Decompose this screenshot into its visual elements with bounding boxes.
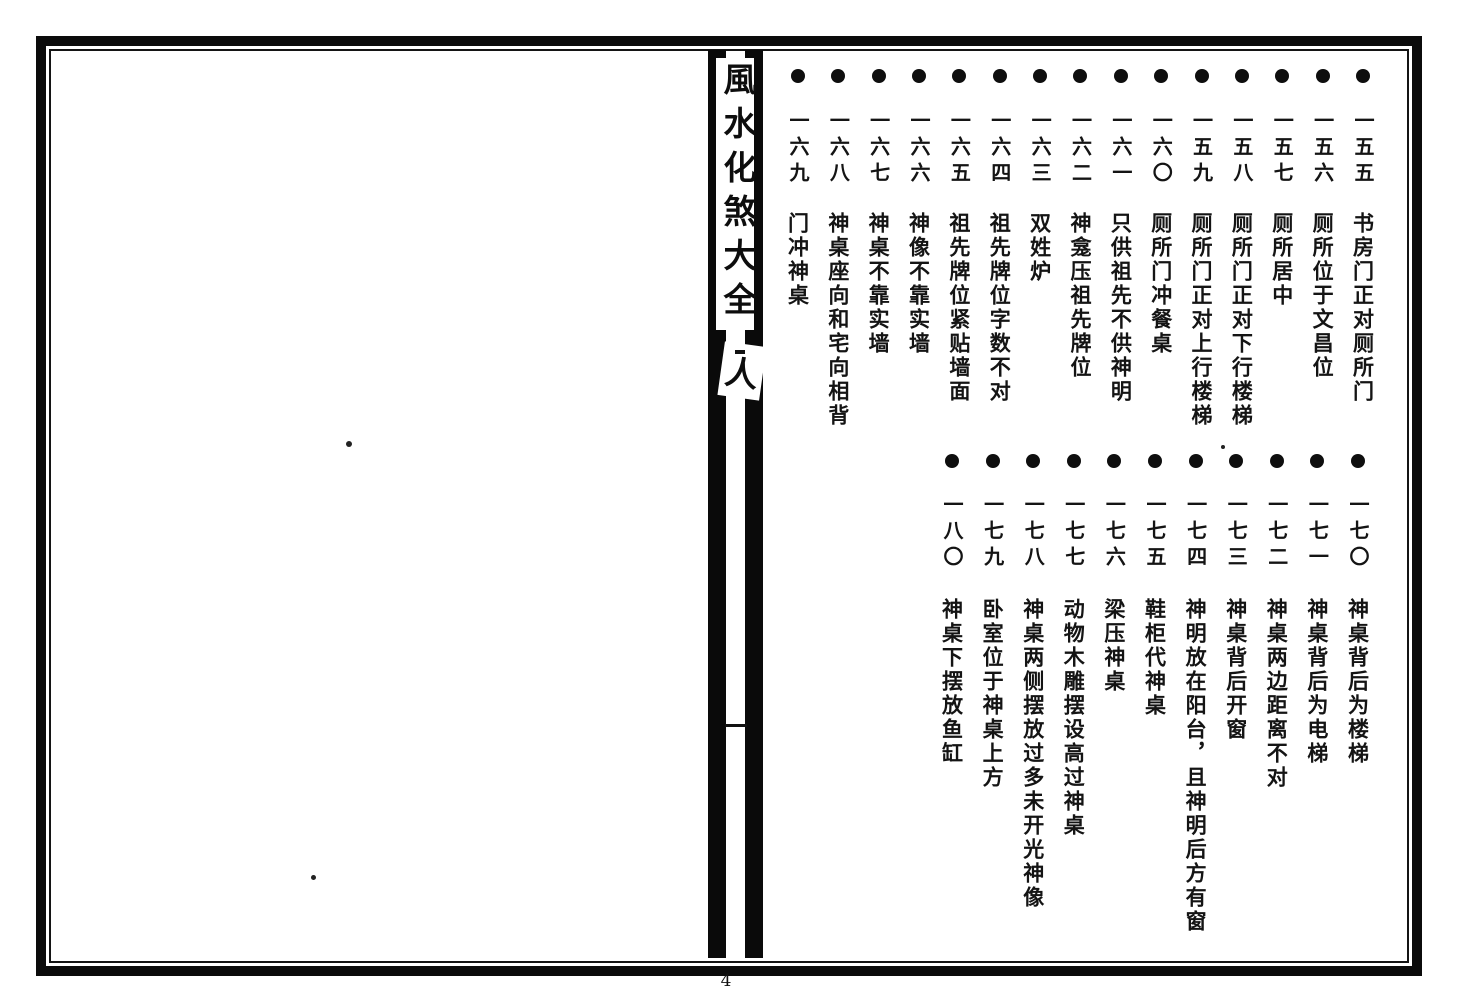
entry-title: 神桌两边距离不对 xyxy=(1266,598,1287,790)
scanned-book-spread: 風水化煞大全 人 一五五书房门正对厕所门一五六厕所位于文昌位一五七厕所居中一五八… xyxy=(0,0,1459,1003)
bullet-dot-icon xyxy=(1067,454,1081,468)
spine-divider-line xyxy=(735,350,745,354)
scan-speck xyxy=(346,441,352,447)
toc-entry: 一七七动物木雕摆设高过神桌 xyxy=(1054,0,1094,1003)
entry-page-number: 一七九 xyxy=(983,494,1003,572)
entry-page-number: 一七六 xyxy=(1104,494,1124,572)
entry-page-number: 一六七 xyxy=(869,110,889,188)
entry-page-number: 一七二 xyxy=(1267,494,1287,572)
entry-title: 门冲神桌 xyxy=(787,212,808,308)
bullet-dot-icon xyxy=(831,69,845,83)
toc-entry: 一六八神桌座向和宅向相背 xyxy=(818,0,858,1003)
entry-title: 神像不靠实墙 xyxy=(909,212,930,356)
toc-entry: 一七四神明放在阳台，且神明后方有窗 xyxy=(1176,0,1216,1003)
entry-page-number: 一七三 xyxy=(1226,494,1246,572)
entry-page-number: 一七八 xyxy=(1023,494,1043,572)
bullet-dot-icon xyxy=(1148,454,1162,468)
entry-page-number: 一六八 xyxy=(828,110,848,188)
bullet-dot-icon xyxy=(1229,454,1243,468)
entry-page-number: 一六九 xyxy=(788,110,808,188)
entry-title: 神桌背后为楼梯 xyxy=(1348,598,1369,766)
toc-entry: 一七一神桌背后为电梯 xyxy=(1297,0,1337,1003)
toc-entry: 一六七神桌不靠实墙 xyxy=(859,0,899,1003)
entry-page-number: 一八〇 xyxy=(942,494,962,572)
bullet-dot-icon xyxy=(912,69,926,83)
entry-page-number: 一六六 xyxy=(909,110,929,188)
bullet-dot-icon xyxy=(1270,454,1284,468)
entry-title: 神桌不靠实墙 xyxy=(868,212,889,356)
entry-page-number: 一七四 xyxy=(1186,494,1206,572)
bullet-dot-icon xyxy=(986,454,1000,468)
entry-page-number: 一七一 xyxy=(1307,494,1327,572)
spine-book-title: 風水化煞大全 xyxy=(716,58,754,330)
toc-entry: 一六九门冲神桌 xyxy=(778,0,818,1003)
entry-title: 神桌背后为电梯 xyxy=(1307,598,1328,766)
entry-page-number: 一七五 xyxy=(1145,494,1165,572)
toc-entry: 一七二神桌两边距离不对 xyxy=(1257,0,1297,1003)
entry-title: 动物木雕摆设高过神桌 xyxy=(1063,598,1084,838)
toc-entry: 一七六梁压神桌 xyxy=(1094,0,1134,1003)
toc-entry: 一七三神桌背后开窗 xyxy=(1216,0,1256,1003)
entry-title: 神桌下摆放鱼缸 xyxy=(942,598,963,766)
entry-title: 梁压神桌 xyxy=(1104,598,1125,694)
bullet-dot-icon xyxy=(1107,454,1121,468)
toc-entry: 一八〇神桌下摆放鱼缸 xyxy=(932,0,972,1003)
entry-title: 神桌座向和宅向相背 xyxy=(828,212,849,428)
entry-page-number: 一七〇 xyxy=(1348,494,1368,572)
entry-title: 卧室位于神桌上方 xyxy=(982,598,1003,790)
entry-title: 鞋柜代神桌 xyxy=(1145,598,1166,718)
toc-entry: 一七〇神桌背后为楼梯 xyxy=(1338,0,1378,1003)
entry-title: 神桌两侧摆放过多未开光神像 xyxy=(1023,598,1044,910)
spine-divider-line xyxy=(725,724,747,727)
entry-title: 神桌背后开窗 xyxy=(1226,598,1247,742)
toc-entry: 一七九卧室位于神桌上方 xyxy=(973,0,1013,1003)
page-number-footer: 4 xyxy=(714,971,738,991)
left-page xyxy=(50,52,700,952)
entry-title: 神明放在阳台，且神明后方有窗 xyxy=(1185,598,1206,934)
toc-entry: 一七五鞋柜代神桌 xyxy=(1135,0,1175,1003)
entry-page-number: 一七七 xyxy=(1064,494,1084,572)
bullet-dot-icon xyxy=(791,69,805,83)
bullet-dot-icon xyxy=(872,69,886,83)
bullet-dot-icon xyxy=(945,454,959,468)
bullet-dot-icon xyxy=(1026,454,1040,468)
toc-entry: 一七八神桌两侧摆放过多未开光神像 xyxy=(1013,0,1053,1003)
scan-speck xyxy=(311,875,316,880)
bullet-dot-icon xyxy=(1351,454,1365,468)
bullet-dot-icon xyxy=(1189,454,1203,468)
bullet-dot-icon xyxy=(1310,454,1324,468)
